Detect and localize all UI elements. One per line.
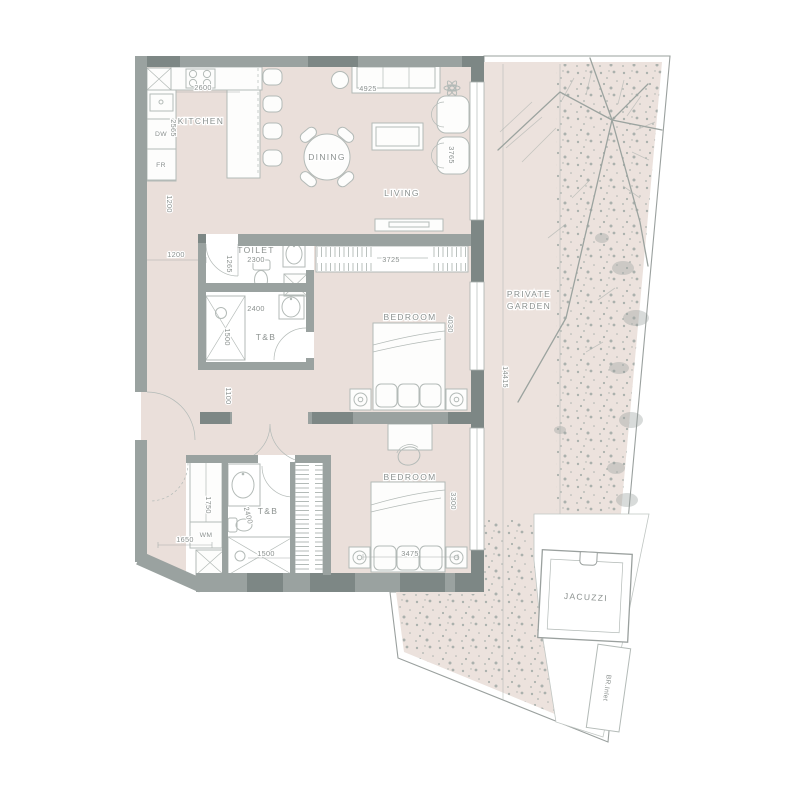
dining-area: DINING: [298, 125, 355, 189]
dim-bedroom-lower-length: 3300: [449, 492, 458, 509]
kitchen-label: KITCHEN: [178, 116, 224, 126]
dim-toilet-width: 1265: [225, 255, 234, 272]
side-table: [332, 72, 349, 89]
kitchen-peninsula: [227, 90, 260, 178]
dim-toilet-length: 2300: [247, 255, 264, 264]
bedside-table: [350, 389, 371, 410]
dim-garden-length: 14415: [501, 366, 510, 388]
dim-kitchen-depth: 2565: [169, 119, 178, 136]
tb-lower-label: T&B: [258, 506, 278, 516]
fridge-label: FR: [156, 162, 166, 169]
dim-kitchen-counter: 2600: [194, 83, 211, 92]
bed: [373, 323, 445, 410]
garden-label-line2: GARDEN: [507, 301, 551, 311]
garden-label-line1: PRIVATE: [507, 289, 551, 299]
dim-utility-width: 1650: [176, 535, 193, 544]
toilet-label: TOILET: [237, 245, 274, 255]
wardrobe: [295, 462, 323, 575]
dim-wm-closet: 1750: [204, 496, 213, 513]
bedside-table: [349, 547, 370, 568]
dishwasher-label: DW: [155, 131, 167, 138]
dim-tb-upper-shower: 1500: [223, 328, 232, 345]
window: [470, 282, 484, 370]
dim-entry-hall-h: 1200: [167, 250, 184, 259]
jacuzzi-step: [580, 552, 598, 566]
window: [470, 82, 484, 220]
kitchen-counter: [171, 67, 262, 90]
dim-tb-lower-shower: 1500: [257, 549, 274, 558]
bed: [371, 482, 445, 572]
tb-upper-label: T&B: [256, 332, 276, 342]
coffee-table: [372, 123, 423, 150]
dim-hall-mid: 1100: [224, 388, 233, 405]
duct-shaft-icon: [196, 550, 224, 575]
bedside-table: [446, 547, 467, 568]
jacuzzi: JACUZZI: [538, 550, 632, 643]
washing-machine-label: WM: [200, 532, 213, 539]
bedroom-lower-label: BEDROOM: [383, 472, 436, 482]
floor-plan: PRIVATE GARDEN 14415 JACUZZI BR.Inlet: [0, 0, 800, 800]
tv-console: [375, 219, 443, 231]
living-label: LIVING: [384, 188, 420, 198]
window: [470, 428, 484, 550]
dim-entry-hall-v: 1200: [165, 195, 174, 212]
dim-tb-upper-length: 2400: [247, 304, 264, 313]
bedside-table: [446, 389, 467, 410]
bedroom-mid-label: BEDROOM: [383, 312, 436, 322]
dim-bedroom-mid-length: 4030: [446, 315, 455, 332]
dim-wardrobe-mid: 3725: [382, 255, 399, 264]
dining-label: DINING: [308, 152, 346, 162]
dim-sofa-wall: 4925: [359, 84, 376, 93]
dim-bedroom-lower-width: 3475: [401, 549, 418, 558]
dim-living-window: 3765: [447, 146, 456, 163]
armchair: [432, 96, 470, 133]
